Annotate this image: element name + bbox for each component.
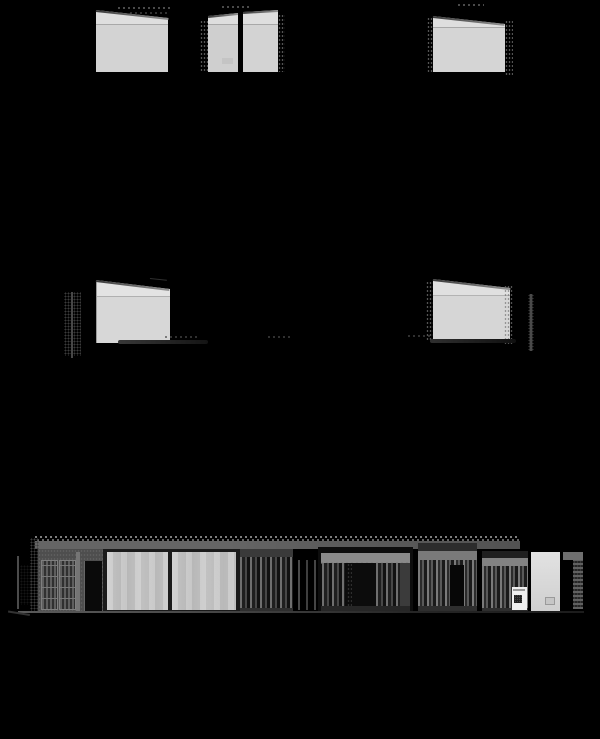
glazed-door-panel [59, 560, 76, 610]
door-handle [545, 597, 555, 605]
dimension-tick-column [426, 281, 434, 341]
parapet-dotted-edge [35, 536, 520, 538]
slat-field [418, 560, 477, 606]
dimension-text-marks [222, 6, 250, 8]
ground-annotation-marks [268, 336, 292, 338]
appliance-control-panel [514, 595, 522, 603]
slat-group [322, 563, 345, 608]
dimension-tick-column [278, 14, 285, 72]
dimension-tick-column [504, 285, 513, 345]
dimension-text-marks [458, 4, 484, 6]
shrub-scatter [20, 565, 32, 605]
veranda-section [318, 547, 413, 612]
section-header-dark [418, 543, 477, 551]
section-header-band [240, 549, 293, 557]
free-post [314, 560, 316, 610]
section-header-dark [482, 551, 528, 558]
door-panel [531, 552, 560, 612]
ground-shadow [118, 340, 208, 344]
appliance-unit [512, 587, 527, 610]
ground-line [18, 611, 584, 613]
slat-screen-section [240, 549, 293, 612]
middle-elevation-right-wall [433, 279, 510, 342]
dark-doorway [450, 565, 464, 608]
dark-doorway [84, 561, 102, 611]
left-slat-facade [38, 549, 103, 612]
slat-screen-section [482, 551, 528, 612]
slat-field [240, 557, 293, 608]
roof-extension-line [150, 278, 167, 281]
slat-screen-section [418, 543, 477, 612]
pier [400, 563, 410, 608]
glass-panel-2 [172, 552, 236, 610]
ground-annotation-marks [165, 336, 199, 338]
glazed-door-panel [41, 560, 58, 610]
slender-post [17, 556, 19, 609]
appliance-vent-line [513, 589, 525, 591]
dimension-text-marks [118, 7, 172, 9]
dimension-tick-column [505, 20, 513, 76]
opening-texture [347, 563, 352, 608]
tree-trunk [71, 292, 73, 358]
architectural-drawing-sheet [0, 0, 600, 739]
section-header-band [482, 558, 528, 566]
section-header-band [418, 551, 477, 560]
top-elevation-mid-wall-right [243, 10, 278, 72]
ground-shadow [430, 339, 516, 343]
wall-post [76, 552, 80, 612]
wall-shade-patch [222, 58, 233, 64]
pergola-beam [563, 552, 583, 560]
slat-group [376, 563, 400, 608]
free-post [298, 560, 300, 610]
dimension-tick-column [200, 20, 208, 72]
free-post [306, 560, 308, 610]
glass-panel-1 [107, 552, 168, 610]
post-core [530, 294, 532, 351]
slat-column-texture [573, 560, 583, 609]
